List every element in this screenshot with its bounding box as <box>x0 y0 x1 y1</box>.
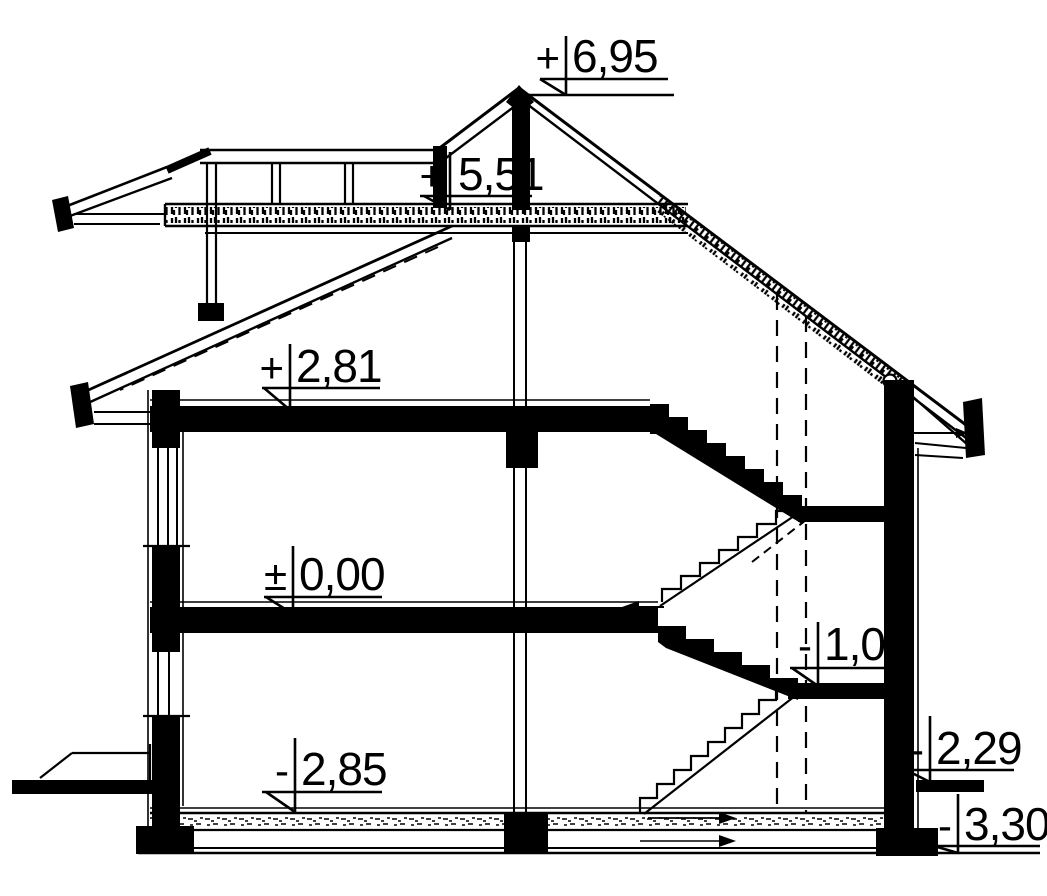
level-sign: - <box>798 622 812 669</box>
first-floor-slab <box>150 406 650 432</box>
level-sign: + <box>419 152 444 199</box>
elevation-marker-exterior-grade: - 2,29 <box>902 716 1022 782</box>
right-fascia <box>963 398 985 458</box>
level-sign: - <box>275 747 289 794</box>
left-wall-segment <box>152 546 180 652</box>
level-sign: + <box>259 344 284 391</box>
foundation-pad <box>504 812 548 852</box>
left-wall-segment <box>152 390 180 448</box>
column-capital <box>506 430 538 468</box>
left-wall-segment <box>152 716 180 830</box>
right-wall <box>884 380 914 854</box>
foundation-pad <box>876 828 938 856</box>
level-sign: - <box>910 726 924 773</box>
cross-section-svg: + 6,95 + 5,51 + 2,81 ± 0,00 <box>0 0 1047 896</box>
upper-landing-slab <box>798 506 886 522</box>
level-value: 2,85 <box>301 743 387 795</box>
lower-landing-slab <box>788 683 886 699</box>
right-exterior-grade <box>916 780 984 792</box>
level-value: 2,29 <box>936 722 1022 774</box>
level-sign: + <box>535 34 560 81</box>
level-value: 1,05 <box>824 618 910 670</box>
level-value: 3,30 <box>964 798 1047 850</box>
post-joint <box>198 303 224 321</box>
level-value: 5,51 <box>458 148 544 200</box>
elevation-marker-foundation-bottom: - 3,30 <box>930 794 1047 853</box>
level-sign: ± <box>264 552 287 599</box>
level-value: 2,81 <box>296 340 382 392</box>
cross-section-drawing: + 6,95 + 5,51 + 2,81 ± 0,00 <box>0 0 1047 896</box>
foundation-pad <box>136 826 194 854</box>
attic-insulation-band <box>166 207 686 223</box>
level-value: 0,00 <box>299 548 385 600</box>
left-exterior-grade <box>12 780 152 794</box>
level-sign: - <box>938 802 952 849</box>
level-value: 6,95 <box>572 30 658 82</box>
ground-floor-slab <box>150 607 658 633</box>
